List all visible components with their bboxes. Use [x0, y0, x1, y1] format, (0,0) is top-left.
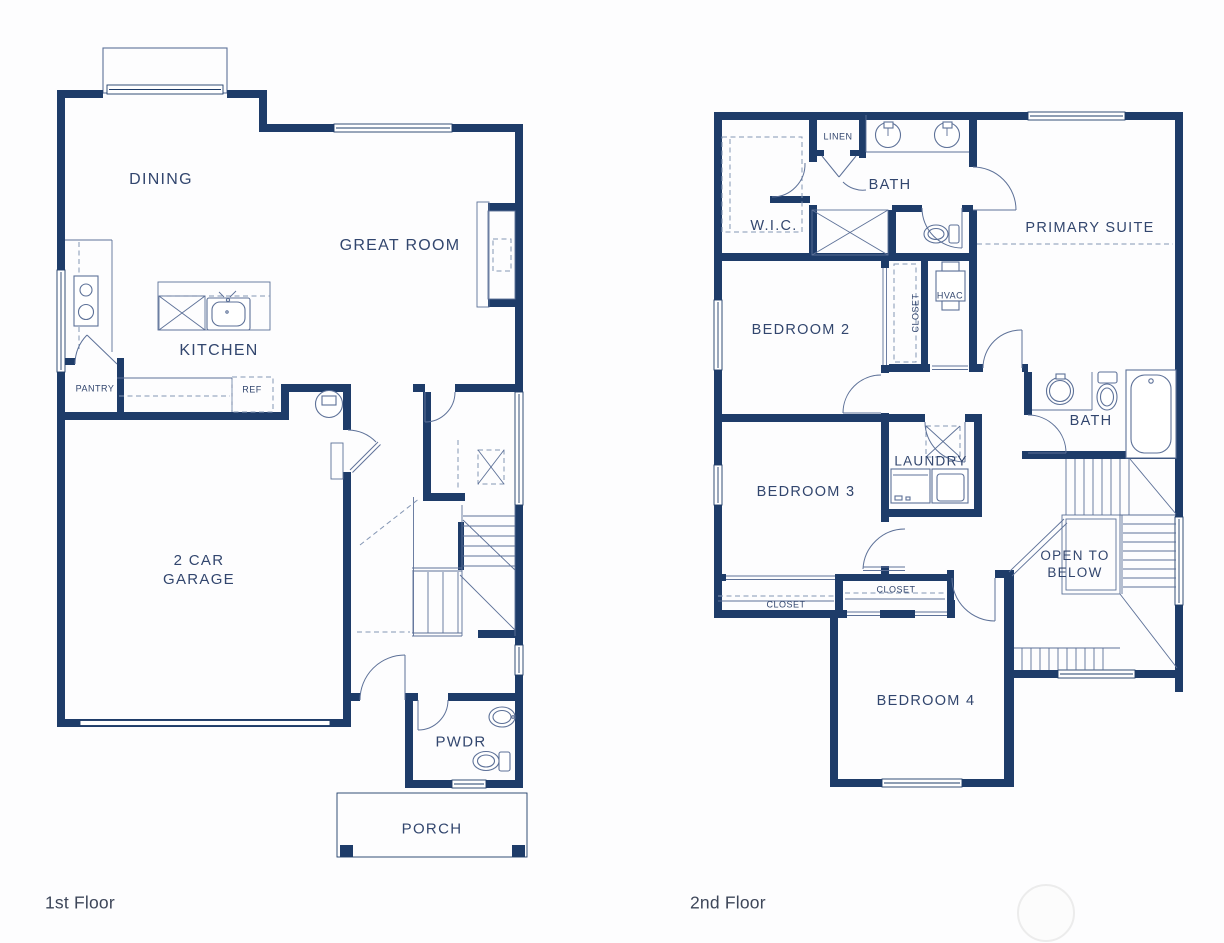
room-label-dining: DINING: [129, 170, 193, 190]
room-label-closet-bedroom2: CLOSET: [910, 293, 921, 332]
room-label-laundry: LAUNDRY: [894, 452, 967, 469]
room-label-bedroom2: BEDROOM 2: [752, 321, 851, 339]
second-floor-plan: [714, 112, 1183, 787]
sink-icon: [935, 122, 960, 148]
walls-second-floor: [714, 112, 1183, 787]
bathtub-icon: [1126, 370, 1176, 458]
toilet-icon: [1097, 372, 1117, 410]
front-door: [360, 655, 405, 700]
bedroom4-door: [952, 578, 995, 621]
hvac-unit-icon: [936, 262, 965, 310]
toilet-icon: [473, 752, 510, 772]
room-label-ref: REF: [242, 384, 262, 395]
wic-door: [772, 163, 805, 197]
pantry-door: [75, 335, 117, 364]
sink-icon: [876, 122, 901, 148]
photo-watermark-circle: [1017, 884, 1075, 942]
porch-post: [340, 845, 353, 857]
fireplace-niche: [477, 202, 515, 307]
linen-closet-doors: [822, 156, 866, 190]
room-label-wic: W.I.C.: [750, 217, 797, 235]
room-label-bedroom3: BEDROOM 3: [757, 483, 856, 501]
sink-icon: [489, 707, 515, 727]
primary-suite-door: [973, 167, 1016, 210]
room-label-closet-hall: CLOSET: [876, 584, 915, 595]
room-label-bedroom4: BEDROOM 4: [877, 692, 976, 710]
floor-plan-drawing: [0, 0, 1224, 943]
room-label-pwdr: PWDR: [435, 732, 486, 751]
floor-plan-canvas: DINING GREAT ROOM KITCHEN PANTRY REF 2 C…: [0, 0, 1224, 943]
windows-second-floor: [714, 112, 1183, 787]
garage-entry-door: [331, 430, 381, 479]
floor-title-first: 1st Floor: [45, 893, 115, 914]
shower-icon: [812, 210, 888, 255]
bedroom3-door: [863, 529, 905, 571]
doors-first-floor: [75, 335, 455, 730]
room-label-linen: LINEN: [823, 131, 852, 142]
sink-icon: [1047, 374, 1074, 405]
primary-suite-hall-door: [983, 330, 1022, 368]
room-label-open-to-below: OPEN TO BELOW: [1040, 547, 1109, 581]
garage-door: [80, 721, 330, 726]
room-label-porch: PORCH: [402, 819, 463, 838]
bay-window: [103, 48, 227, 94]
porch-post: [512, 845, 525, 857]
room-label-pantry: PANTRY: [76, 383, 115, 394]
room-label-garage: 2 CAR GARAGE: [163, 551, 235, 589]
floor-title-second: 2nd Floor: [690, 893, 766, 914]
room-label-bath-hall: BATH: [1070, 412, 1113, 430]
room-label-bath-upper: BATH: [869, 176, 912, 194]
range-icon: [74, 276, 98, 326]
under-stair-closet: [478, 450, 504, 484]
bedroom2-door: [843, 375, 881, 413]
water-heater-icon: [316, 391, 343, 418]
room-label-kitchen: KITCHEN: [179, 341, 258, 361]
windows-first-floor: [57, 124, 523, 788]
room-label-hvac: HVAC: [937, 290, 963, 301]
bath-hall-door: [1028, 415, 1066, 453]
room-label-primary-suite: PRIMARY SUITE: [1025, 219, 1154, 237]
room-label-closet-bedroom3: CLOSET: [766, 599, 805, 610]
dryer-icon: [932, 469, 968, 503]
room-label-great-room: GREAT ROOM: [340, 236, 461, 256]
toilet-icon: [924, 225, 959, 243]
washer-icon: [891, 469, 930, 503]
kitchen-sink-icon: [207, 291, 250, 330]
dishwasher-icon: [159, 296, 205, 330]
powder-room-door: [418, 700, 448, 730]
